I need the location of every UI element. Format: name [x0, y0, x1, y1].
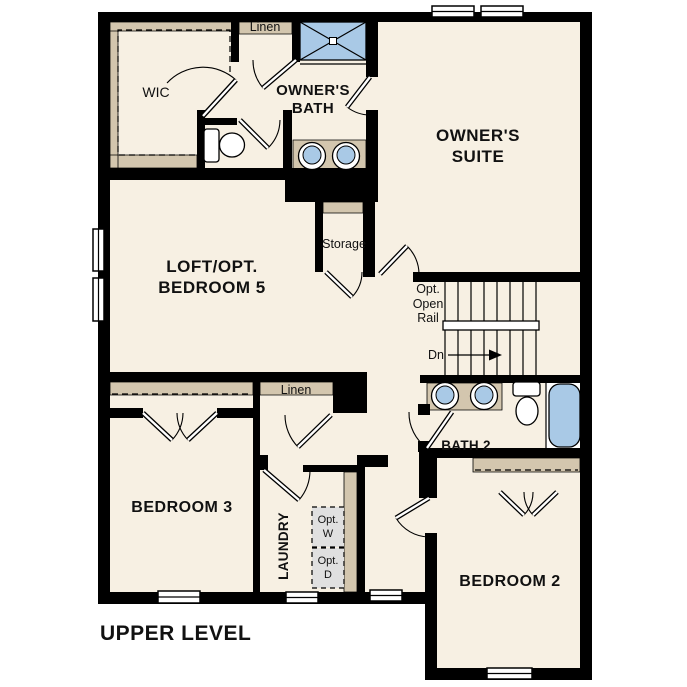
opt-dryer-label-line2: D	[324, 569, 332, 581]
room-label-bath2: BATH 2	[441, 438, 491, 453]
opt-dryer-box	[312, 548, 344, 588]
room-label-owners-suite-line2: SUITE	[452, 147, 505, 166]
opt-washer-label-line1: Opt.	[318, 514, 339, 526]
stairs-opt-rail-line1: Opt.	[416, 282, 440, 296]
opt-dryer-label-line1: Opt.	[318, 555, 339, 567]
room-label-owners-suite-line1: OWNER'S	[436, 126, 520, 145]
stairs-down-label: Dn	[428, 348, 444, 362]
room-label-loft-line1: LOFT/OPT.	[166, 257, 257, 276]
room-label-loft-line2: BEDROOM 5	[158, 278, 265, 297]
shower-drain	[330, 38, 337, 45]
room-label-wic: WIC	[142, 84, 169, 100]
owners-toilet-tank	[204, 129, 219, 162]
closet-label-storage: Storage	[322, 237, 366, 251]
owners-toilet-bowl	[220, 133, 245, 157]
room-label-bedroom3: BEDROOM 3	[131, 499, 232, 516]
bath2-sink-right-basin	[475, 386, 493, 404]
stairs-opt-rail-line2: Open	[413, 297, 444, 311]
stair-rail	[443, 321, 539, 330]
bathtub	[549, 384, 580, 447]
plan-title: UPPER LEVEL	[100, 622, 251, 645]
closet-label-linen-upper: Linen	[250, 20, 281, 34]
closet-label-linen-hall: Linen	[281, 383, 312, 397]
bath2-toilet-tank	[513, 382, 540, 396]
owners-bath-sink-right-basin	[337, 146, 355, 164]
stairs-opt-rail-line3: Rail	[417, 311, 439, 325]
floorplan-svg: WIC OWNER'S BATH OWNER'S SUITE LOFT/OPT.…	[0, 0, 687, 687]
bath2-sink-left-basin	[436, 386, 454, 404]
room-label-owners-bath-line2: BATH	[292, 100, 334, 117]
owners-bath-sink-left-basin	[303, 146, 321, 164]
bath2-toilet-bowl	[516, 397, 538, 425]
room-label-laundry: LAUNDRY	[276, 512, 291, 580]
opt-washer-label-line2: W	[323, 528, 334, 540]
room-label-owners-bath-line1: OWNER'S	[276, 82, 350, 99]
opt-washer-box	[312, 507, 344, 547]
floorplan-canvas: WIC OWNER'S BATH OWNER'S SUITE LOFT/OPT.…	[0, 0, 687, 687]
room-label-bedroom2: BEDROOM 2	[459, 573, 560, 590]
